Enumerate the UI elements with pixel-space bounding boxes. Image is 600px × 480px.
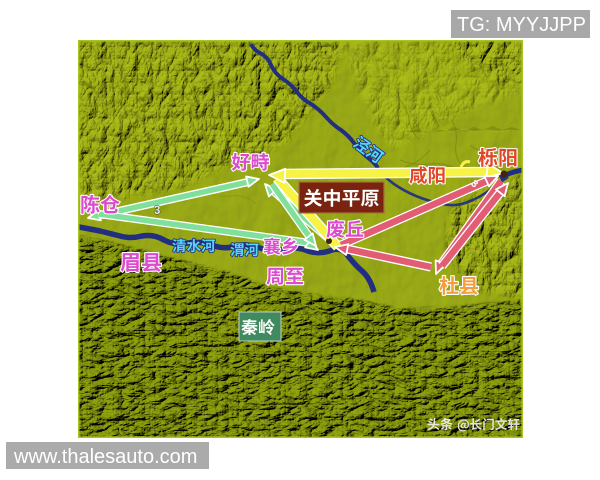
svg-text:www.thalesauto.com: www.thalesauto.com: [13, 446, 197, 468]
svg-text:TG: MYYJJPP: TG: MYYJJPP: [457, 14, 586, 36]
svg-text:3: 3: [154, 205, 160, 217]
